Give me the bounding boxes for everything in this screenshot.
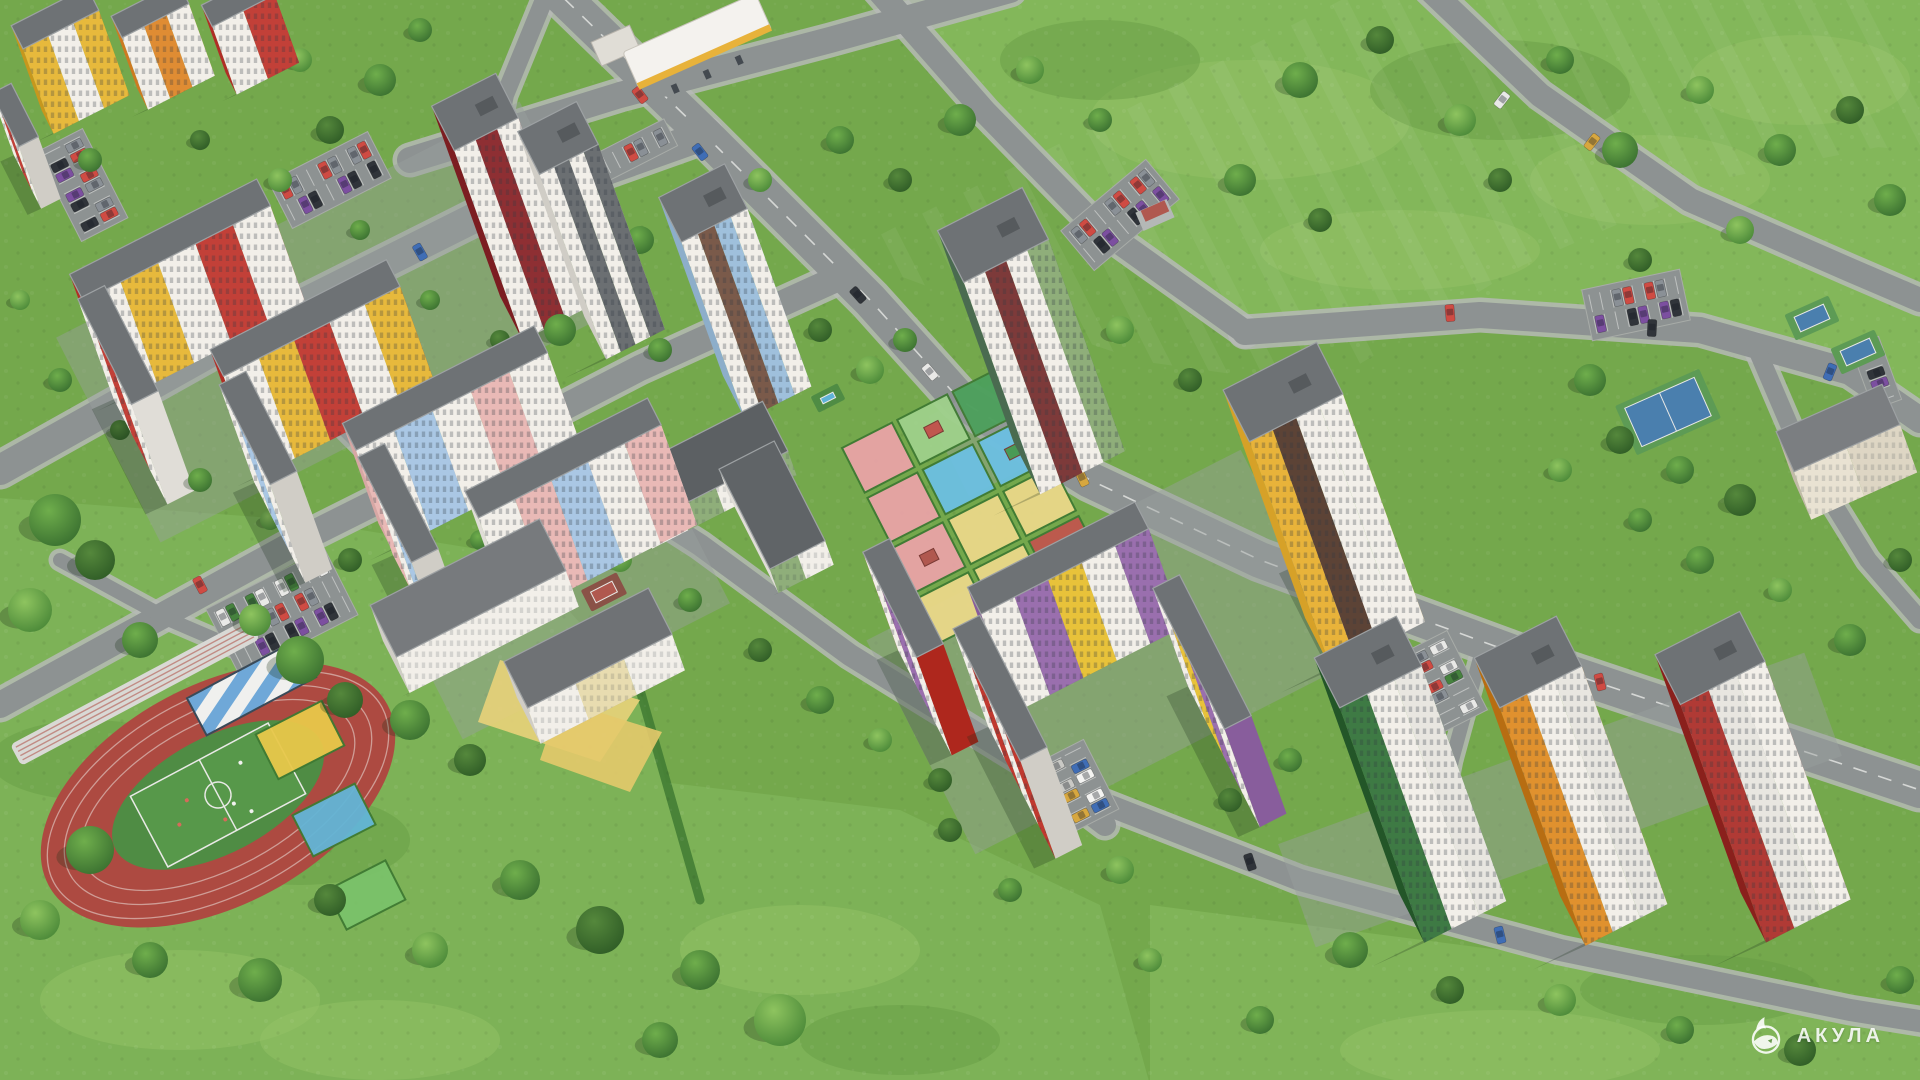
tree [1546,46,1574,74]
tree [239,604,271,636]
tree [648,338,672,362]
tree [190,130,210,150]
tree [48,368,72,392]
tree [754,994,806,1046]
tree [544,314,576,346]
tree [1224,164,1256,196]
tree [364,64,396,96]
tree [642,1022,678,1058]
tree [1178,368,1202,392]
tree [998,878,1022,902]
tree [268,168,292,192]
tree [75,540,115,580]
tree [390,700,430,740]
shark-logo-icon [1748,1016,1784,1056]
tree [1332,932,1368,968]
tree [748,168,772,192]
tree [1308,208,1332,232]
aerial-residential-complex-render: АКУЛА [0,0,1920,1080]
tree [1138,948,1162,972]
scene-canvas [0,0,1920,1080]
tree [408,18,432,42]
tree [8,588,52,632]
tree [1874,184,1906,216]
tree [338,548,362,572]
tree [1282,62,1318,98]
tree [928,768,952,792]
tree [1724,484,1756,516]
watermark: АКУЛА [1748,1016,1884,1056]
tree [938,818,962,842]
tree [1246,1006,1274,1034]
tree [1548,458,1572,482]
tree [806,686,834,714]
tree [678,588,702,612]
tree [1836,96,1864,124]
tree [856,356,884,384]
tree [10,290,30,310]
tree [314,884,346,916]
tree [29,494,81,546]
tree [66,826,114,874]
tree [1016,56,1044,84]
tree [276,636,324,684]
tree [888,168,912,192]
tree [808,318,832,342]
tree [1726,216,1754,244]
tree [1606,426,1634,454]
tree [826,126,854,154]
tree [78,148,102,172]
tree [350,220,370,240]
tree [1444,104,1476,136]
tree [1366,26,1394,54]
tree [1106,316,1134,344]
tree [893,328,917,352]
tree [1768,578,1792,602]
tree [122,622,158,658]
tree [454,744,486,776]
tree [1888,548,1912,572]
tree [327,682,363,718]
tree [1088,108,1112,132]
tree [20,900,60,940]
tree [1764,134,1796,166]
tree [1544,984,1576,1016]
tree [868,728,892,752]
tree [1436,976,1464,1004]
tree [1488,168,1512,192]
tree [1628,508,1652,532]
tree [420,290,440,310]
tree [1106,856,1134,884]
tree [188,468,212,492]
tree [412,932,448,968]
tree [1666,1016,1694,1044]
tree [1834,624,1866,656]
tree [238,958,282,1002]
tree [1602,132,1638,168]
tree [132,942,168,978]
tree [1628,248,1652,272]
tree [500,860,540,900]
tree [1686,546,1714,574]
tree [576,906,624,954]
tree [748,638,772,662]
tree [680,950,720,990]
tree [1686,76,1714,104]
tree [1278,748,1302,772]
tree [944,104,976,136]
watermark-text: АКУЛА [1797,1025,1884,1048]
tree [1218,788,1242,812]
tree [1574,364,1606,396]
tree [1666,456,1694,484]
tree [1886,966,1914,994]
tree [316,116,344,144]
